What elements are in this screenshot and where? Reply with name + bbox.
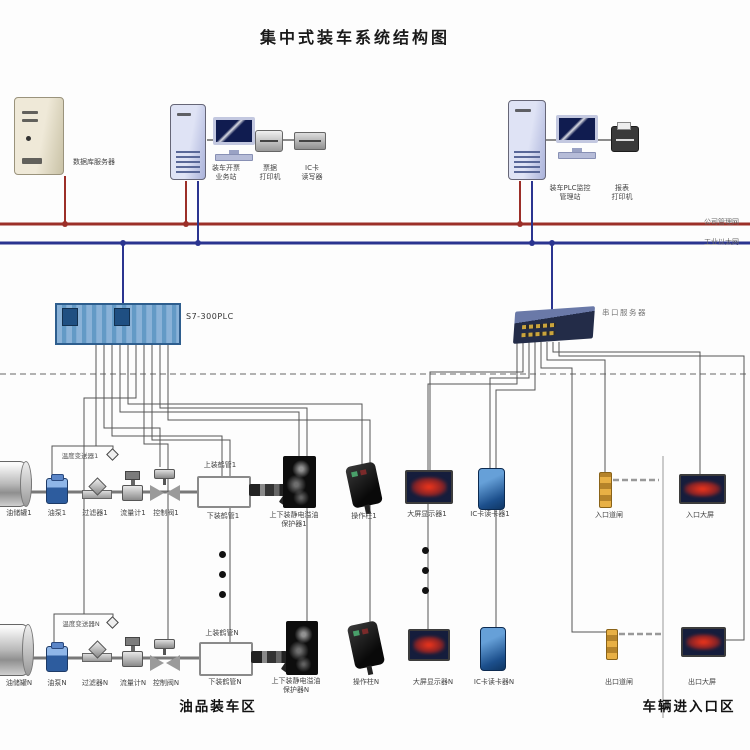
tank-n: [0, 624, 34, 676]
ic-card-reader-n: [480, 627, 506, 671]
bottom-arm-1-label: 下装鹤管1: [199, 512, 247, 521]
plc-module: [114, 308, 130, 326]
exit-gate-post: [606, 629, 618, 660]
database-server-label: 数据库服务器: [54, 158, 134, 167]
ic-card-writer-device: [294, 132, 326, 150]
static-protector-n: [286, 621, 318, 675]
loading-arm-nozzle-1: [249, 484, 285, 496]
plc-monitor-station-label: 装车PLC监控 管理站: [544, 184, 596, 202]
plc-monitor-server-tower: [508, 100, 546, 180]
ticketing-station-monitor: [213, 117, 255, 162]
tank-1: [0, 461, 32, 507]
filter-1: [82, 483, 114, 503]
monitor-base: [215, 154, 253, 161]
entry-gate-post: [599, 472, 612, 508]
serial-ports: [521, 331, 555, 337]
top-arm-n-label: 上装鹤管N: [198, 629, 246, 638]
vehicle-entry-zone-title: 车辆进入口区: [628, 699, 750, 717]
temp-transmitter-n-label: 温度变送器N: [54, 620, 108, 628]
serial-server-label: 串口服务器: [602, 308, 654, 318]
ticket-printer-label: 票据 打印机: [252, 164, 288, 182]
big-display-1: [405, 470, 453, 504]
company-lan-label: 公司管理网: [704, 218, 750, 227]
indicator-green: [351, 471, 358, 477]
control-valve-1: [149, 469, 181, 502]
report-printer-label: 报表 打印机: [604, 184, 640, 202]
pump-1-label: 油泵1: [40, 509, 74, 518]
ticket-printer-device: [255, 130, 283, 152]
monitor-base: [558, 152, 596, 159]
control-valve-1-label: 控制阀1: [147, 509, 185, 518]
filter-1-label: 过滤器1: [76, 509, 114, 518]
ethernet-drops: [123, 181, 552, 310]
tank-1-label: 油储罐1: [0, 509, 40, 518]
plc-module: [62, 308, 78, 326]
monitor-screen: [556, 115, 598, 143]
system-structure-diagram: 集中式装车系统结构图 公司管理网 工业以太网 数据库服务器 装车开票 业务站 票…: [0, 0, 750, 750]
plc-monitor-station-monitor: [556, 115, 598, 161]
page-title: 集中式装车系统结构图: [185, 24, 525, 48]
ic-card-reader-1-label: IC卡读卡器1: [460, 510, 520, 519]
plc-label: S7-300PLC: [186, 312, 240, 322]
printer-paper: [617, 122, 631, 130]
loading-zone-title: 油品装车区: [160, 699, 276, 717]
flow-meter-1: [122, 471, 144, 503]
vents: [176, 151, 200, 173]
exit-display-label: 出口大屏: [678, 678, 726, 687]
barrier-arms: [613, 480, 661, 634]
big-display-n-label: 大屏显示器N: [400, 678, 466, 687]
op-column-n-label: 操作柱N: [344, 678, 388, 687]
control-valve-n: [149, 639, 181, 672]
entry-gate-label: 入口道闸: [586, 511, 632, 520]
entry-display-label: 入口大屏: [676, 511, 724, 520]
ic-card-reader-n-label: IC卡读卡器N: [464, 678, 524, 687]
pump-n-label: 油泵N: [40, 679, 74, 688]
pump-n: [46, 646, 68, 672]
static-protector-1: [283, 456, 316, 508]
loading-arm-nozzle-n: [251, 651, 287, 663]
vents: [514, 151, 540, 173]
ticketing-station-label: 装车开票 业务站: [204, 164, 248, 182]
big-display-n: [408, 629, 450, 661]
indicator-green: [353, 630, 360, 636]
temp-transmitter-1-label: 温度变送器1: [53, 452, 107, 460]
exit-display: [681, 627, 726, 657]
indicator-red: [362, 628, 369, 634]
entry-display: [679, 474, 726, 504]
tank-n-label: 油储罐N: [0, 679, 40, 688]
ellipsis-dots-left: [215, 538, 229, 604]
monitor-screen: [213, 117, 255, 145]
industrial-ethernet-label: 工业以太网: [704, 238, 750, 247]
serial-ports: [522, 323, 556, 329]
bottom-arm-n-label: 下装鹤管N: [201, 678, 249, 687]
company-lan-drops: [65, 176, 520, 224]
loading-arm-1: [197, 476, 251, 508]
top-arm-1-label: 上装鹤管1: [196, 461, 244, 470]
report-printer-device: [611, 126, 639, 152]
exit-gate-label: 出口道闸: [596, 678, 642, 687]
ic-card-writer-label: IC卡 读写器: [294, 164, 330, 182]
ellipsis-dots-right: [418, 534, 432, 600]
loading-arm-n: [199, 642, 253, 676]
ic-card-reader-1: [478, 468, 505, 510]
op-column-1-label: 操作柱1: [342, 512, 386, 521]
control-valve-n-label: 控制阀N: [147, 679, 185, 688]
filter-n: [82, 646, 114, 666]
filter-n-label: 过滤器N: [76, 679, 114, 688]
indicator-red: [360, 469, 367, 475]
pump-1: [46, 478, 68, 504]
flow-meter-n: [122, 637, 144, 669]
ticketing-server-tower: [170, 104, 206, 180]
static-protector-n-label: 上下装静电溢油 保护器N: [252, 677, 340, 695]
static-protector-1-label: 上下装静电溢油 保护器1: [250, 511, 338, 529]
plc-rack: [55, 303, 181, 345]
serial-server-device: [513, 306, 595, 344]
big-display-1-label: 大屏显示器1: [394, 510, 460, 519]
